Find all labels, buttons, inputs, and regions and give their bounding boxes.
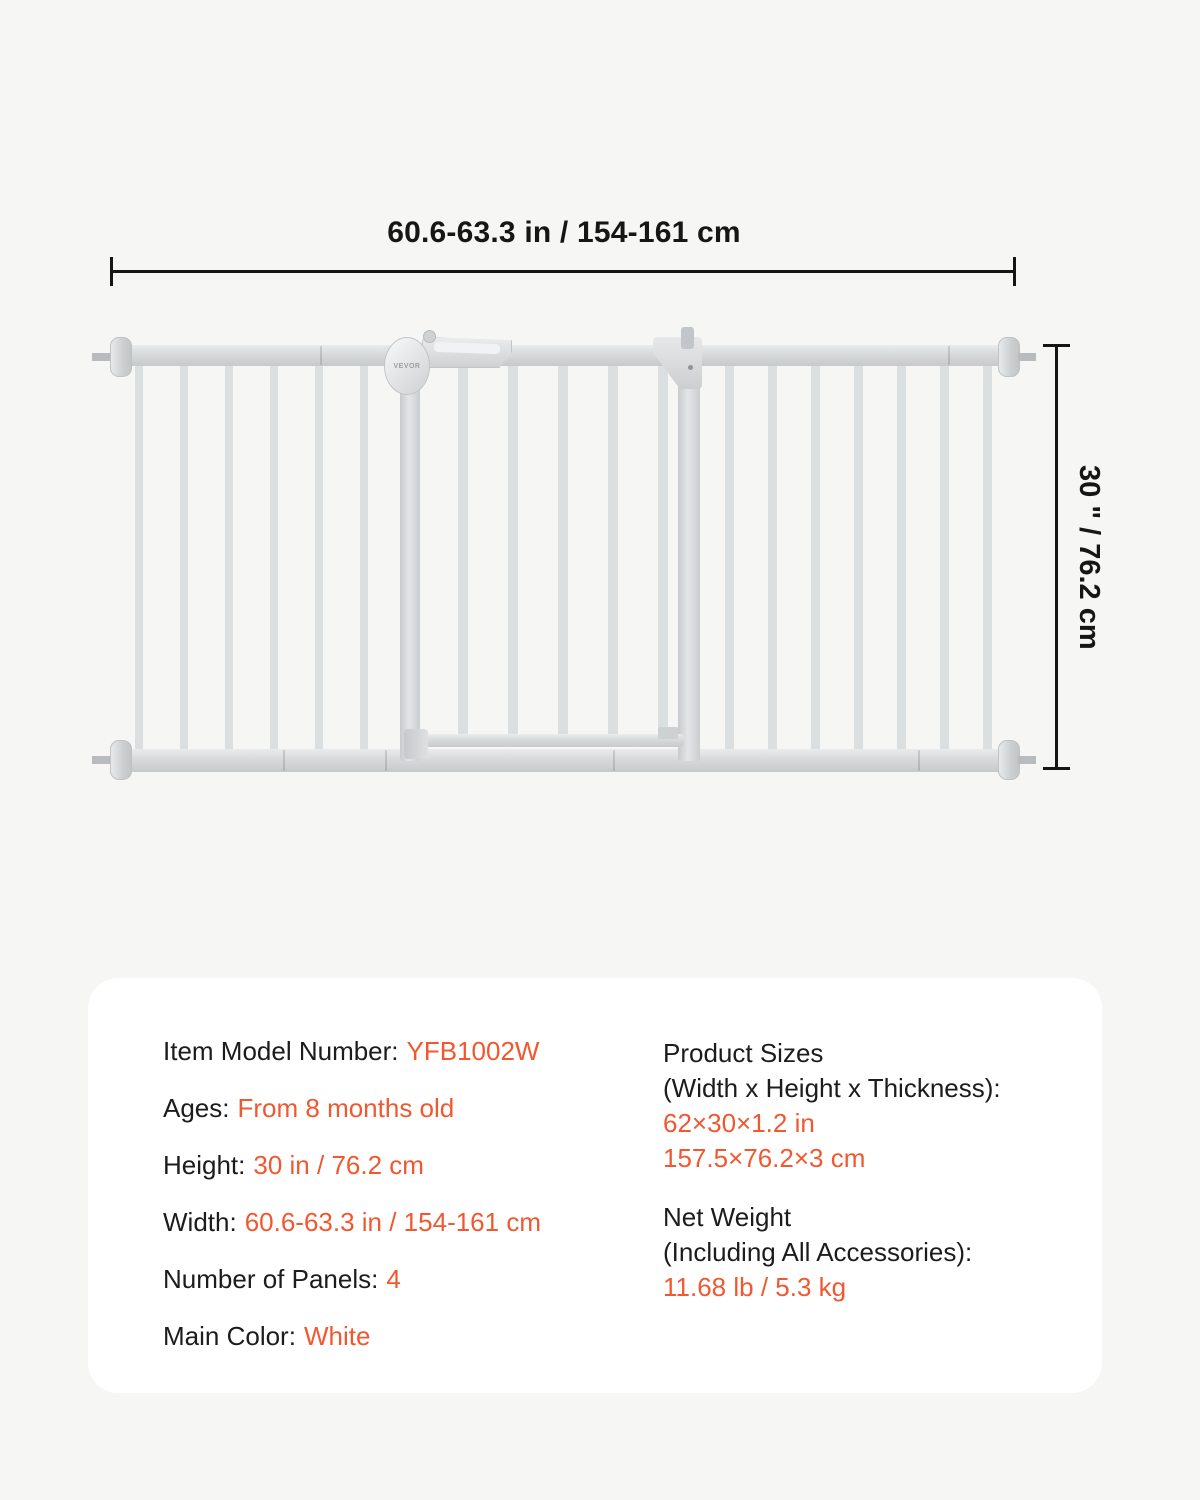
spec-row-panels: Number of Panels:4: [163, 1262, 588, 1296]
spec-row-height: Height:30 in / 76.2 cm: [163, 1148, 588, 1182]
rail-seam: [948, 346, 950, 365]
knob-disc: [110, 337, 132, 377]
knob-screw: [1018, 756, 1036, 764]
spec-block-net-weight: Net Weight (Including All Accessories): …: [663, 1200, 1088, 1305]
gate-latch-post: [678, 347, 700, 761]
knob-screw: [1018, 353, 1036, 361]
rail-seam: [320, 346, 322, 365]
height-dimension-line: [1055, 344, 1058, 770]
knob-disc: [998, 740, 1020, 780]
dimension-tick-top: [1043, 344, 1070, 347]
pressure-knob-bottom-left: [92, 740, 132, 780]
spec-row-width: Width:60.6-63.3 in / 154-161 cm: [163, 1205, 588, 1239]
knob-disc: [110, 740, 132, 780]
spec-row-ages: Ages:From 8 months old: [163, 1091, 588, 1125]
brand-logo-text: VEVOR: [393, 363, 420, 370]
rail-seam: [385, 750, 387, 771]
dimension-tick-bottom: [1043, 767, 1070, 770]
gate-bars-left-panel: [135, 350, 371, 760]
knob-disc: [998, 337, 1020, 377]
spec-row-model: Item Model Number:YFB1002W: [163, 1034, 588, 1068]
spec-row-color: Main Color:White: [163, 1319, 588, 1353]
rail-seam: [918, 750, 920, 771]
width-dimension-label: 60.6-63.3 in / 154-161 cm: [112, 216, 1016, 250]
door-foot: [404, 729, 428, 759]
rail-seam: [283, 750, 285, 771]
door-threshold-bar: [418, 734, 684, 747]
knob-screw: [92, 756, 110, 764]
hinge-disc-with-brand: VEVOR: [384, 337, 430, 395]
spec-list-left: Item Model Number:YFB1002W Ages:From 8 m…: [88, 978, 588, 1393]
spec-card: Item Model Number:YFB1002W Ages:From 8 m…: [88, 978, 1102, 1393]
door-bottom-latch: [658, 727, 678, 739]
gate-bars-right-panel: [725, 350, 993, 760]
spec-block-product-sizes: Product Sizes (Width x Height x Thicknes…: [663, 1036, 1088, 1176]
width-dimension-line: [110, 270, 1016, 273]
height-dimension-label: 30 " / 76.2 cm: [1072, 344, 1105, 770]
pressure-knob-top-left: [92, 337, 132, 377]
handle-lock-button: [423, 330, 436, 343]
dimension-tick-right: [1013, 257, 1016, 286]
knob-screw: [92, 353, 110, 361]
latch-screw-dot: [688, 365, 693, 370]
gate-hinge-post: [400, 347, 420, 761]
gate-top-rail: [114, 345, 1004, 366]
rail-seam: [613, 750, 615, 771]
spec-list-right: Product Sizes (Width x Height x Thicknes…: [588, 978, 1088, 1393]
product-dimension-infographic: 60.6-63.3 in / 154-161 cm: [0, 0, 1200, 1500]
baby-gate-illustration: VEVOR: [90, 325, 1040, 785]
gate-bars-door-panel: [458, 350, 672, 740]
pressure-knob-top-right: [998, 337, 1038, 377]
latch-pin: [681, 327, 694, 349]
dimension-tick-left: [110, 257, 113, 286]
gate-bottom-rail: [114, 749, 1004, 772]
pressure-knob-bottom-right: [998, 740, 1038, 780]
